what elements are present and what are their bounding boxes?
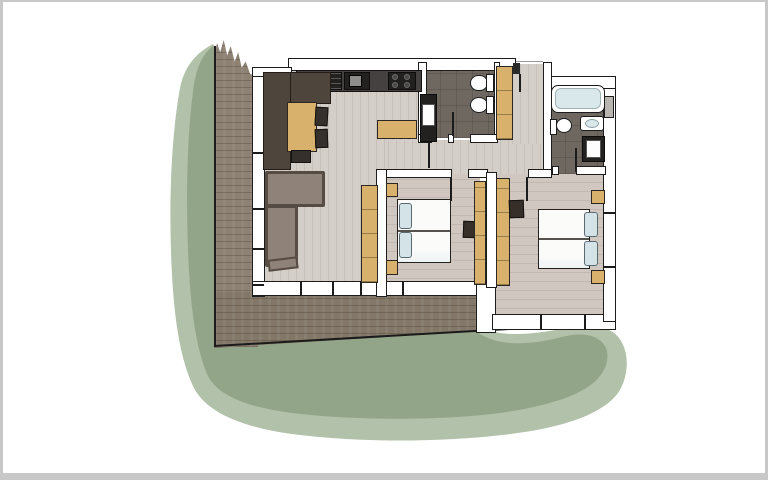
toilet: [556, 118, 572, 133]
toilet-tank: [486, 74, 494, 92]
wall-bottom-living: [252, 281, 480, 296]
wall-niche: [604, 96, 614, 118]
floor-plan: [3, 2, 765, 473]
wall-hall-bathroom2: [543, 62, 552, 174]
burner: [392, 82, 398, 88]
entrance-hall-floor: [512, 64, 543, 144]
burner: [404, 74, 410, 80]
bedroom-2-wardrobe: [496, 178, 510, 286]
hall-cabinet: [496, 66, 513, 140]
bed-2-divider: [539, 238, 589, 240]
nightstand: [386, 183, 398, 197]
window-tick: [253, 248, 264, 250]
window-tick: [360, 282, 362, 295]
chair: [315, 129, 329, 148]
bedroom-1-door-leaf: [450, 177, 452, 201]
deck-edge-left: [214, 46, 216, 347]
pillow: [584, 212, 598, 237]
chair: [291, 150, 311, 163]
sink-bowl: [585, 119, 599, 128]
bedroom-1-wardrobe: [474, 181, 486, 285]
window-tick: [604, 266, 615, 268]
bidet-tank: [486, 96, 494, 114]
wall-bottom-bedroom2: [492, 314, 616, 330]
sideboard: [377, 120, 417, 139]
wall-corridor-c: [528, 169, 552, 178]
window-tick: [540, 315, 542, 329]
entrance-door: [513, 63, 520, 74]
bathroom-2-door-leaf: [575, 148, 577, 172]
sofa-back-section: [265, 171, 325, 207]
bathroom-1-door-leaf: [452, 112, 454, 136]
chair: [315, 107, 329, 127]
sink-basin: [349, 75, 362, 87]
wall-bathroom1-bottom-c: [470, 134, 498, 143]
burner: [392, 74, 398, 80]
window-tick: [253, 284, 264, 286]
window-tick: [332, 282, 334, 295]
living-wardrobe: [361, 185, 378, 283]
wall-right: [603, 86, 616, 322]
bathtub-basin: [555, 88, 601, 109]
washbasin: [586, 140, 601, 158]
dining-table: [287, 102, 317, 152]
window-tick: [300, 282, 302, 295]
wall-corridor-b: [468, 169, 488, 178]
entrance-door-leaf: [519, 74, 521, 92]
pillow: [399, 232, 412, 258]
page-background: [3, 2, 765, 473]
nightstand: [591, 190, 605, 204]
burner: [404, 82, 410, 88]
washbasin: [422, 104, 435, 126]
nightstand: [591, 270, 605, 284]
entrance-threshold: [516, 61, 543, 62]
tv-unit: [509, 200, 525, 219]
window-tick: [604, 212, 615, 214]
window-tick: [402, 282, 404, 295]
wall-corridor-a: [376, 169, 452, 178]
living-door-leaf: [428, 142, 430, 168]
pillow: [399, 203, 412, 229]
pillow: [584, 241, 598, 266]
wall-bathroom2-bottom-b: [576, 166, 606, 175]
wall-bathroom2-bottom-a: [552, 166, 559, 175]
window-tick: [253, 208, 264, 210]
bedroom-2-door-leaf: [526, 177, 528, 201]
window-tick: [584, 315, 586, 329]
screenshot-frame: [0, 0, 768, 480]
